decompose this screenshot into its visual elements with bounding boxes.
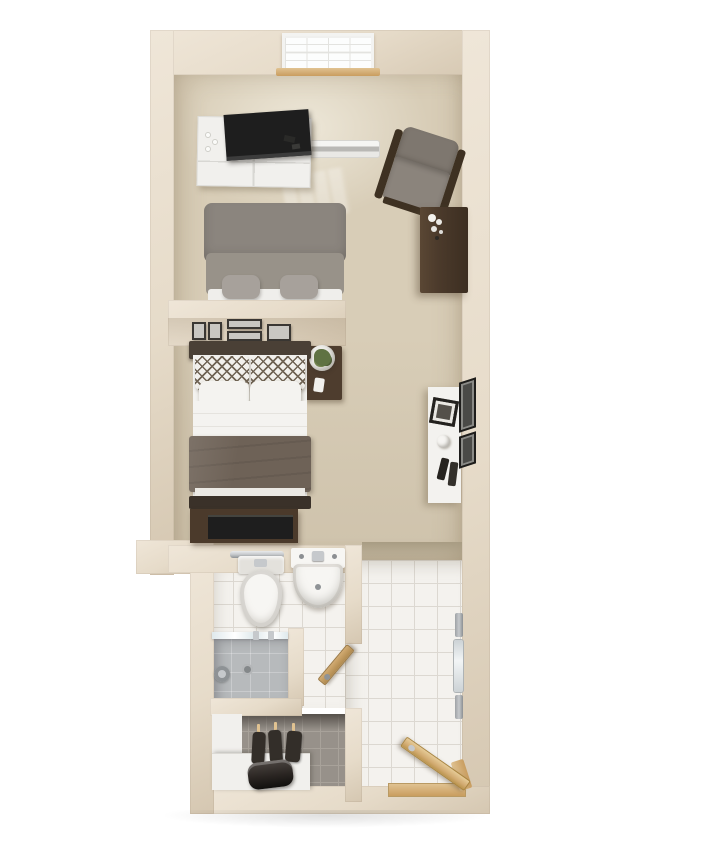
shower-head-icon xyxy=(214,666,230,682)
bed-footboard xyxy=(189,496,311,509)
shower-drain-icon xyxy=(242,664,253,675)
entry-threshold xyxy=(388,783,466,797)
towel-rack xyxy=(455,613,463,637)
picture-frame xyxy=(192,322,206,340)
sink-drain-icon xyxy=(315,584,321,590)
dresser-bottle-icon xyxy=(205,132,211,138)
window xyxy=(282,33,374,71)
door-handle-icon xyxy=(407,744,416,753)
window-sill xyxy=(276,68,380,76)
bed-sheet xyxy=(193,401,307,441)
bed xyxy=(189,341,311,509)
potted-plant-icon xyxy=(314,349,331,366)
faucet-handle-icon xyxy=(332,554,337,559)
wall-shower-stub xyxy=(288,628,304,706)
wall-bathroom-right-upper xyxy=(345,545,362,644)
hall-tile-floor xyxy=(345,560,464,792)
hanging-garment xyxy=(251,732,266,765)
shower-glass-panel xyxy=(212,632,288,639)
wall-art-frame xyxy=(459,431,476,469)
glass-hinge-icon xyxy=(268,631,274,640)
desk-framed-art xyxy=(429,397,459,427)
sofa-pillow xyxy=(222,275,260,299)
bed-blanket xyxy=(189,436,311,492)
tv-at-bed-foot xyxy=(208,515,293,539)
wall-lower-left xyxy=(190,556,214,814)
cup-icon xyxy=(437,435,450,448)
glass-hinge-icon xyxy=(253,631,259,640)
toilet-flush-button xyxy=(254,559,267,567)
wall-mirror xyxy=(454,640,463,692)
flower-decor-icon xyxy=(428,214,436,222)
towel-rack xyxy=(455,695,463,719)
tv xyxy=(223,109,311,161)
picture-frame xyxy=(227,319,262,329)
floor-plan xyxy=(0,0,710,851)
sofa-pillow xyxy=(280,275,318,299)
hanging-garment xyxy=(268,730,283,764)
dresser-bottle-icon xyxy=(212,139,218,145)
wall-art-frame xyxy=(459,377,476,433)
sofa xyxy=(204,203,346,303)
picture-frame xyxy=(267,324,291,341)
faucet-icon xyxy=(312,551,324,561)
plan-drop-shadow xyxy=(160,810,490,828)
phone-icon xyxy=(313,377,325,392)
picture-frame xyxy=(227,331,262,341)
wall-bathroom-right-lower xyxy=(345,708,362,802)
dresser-bottle-icon xyxy=(205,146,211,152)
hanging-garment xyxy=(285,730,303,762)
storage-cabinet xyxy=(420,207,468,293)
picture-frame xyxy=(208,322,222,340)
faucet-handle-icon xyxy=(299,554,304,559)
